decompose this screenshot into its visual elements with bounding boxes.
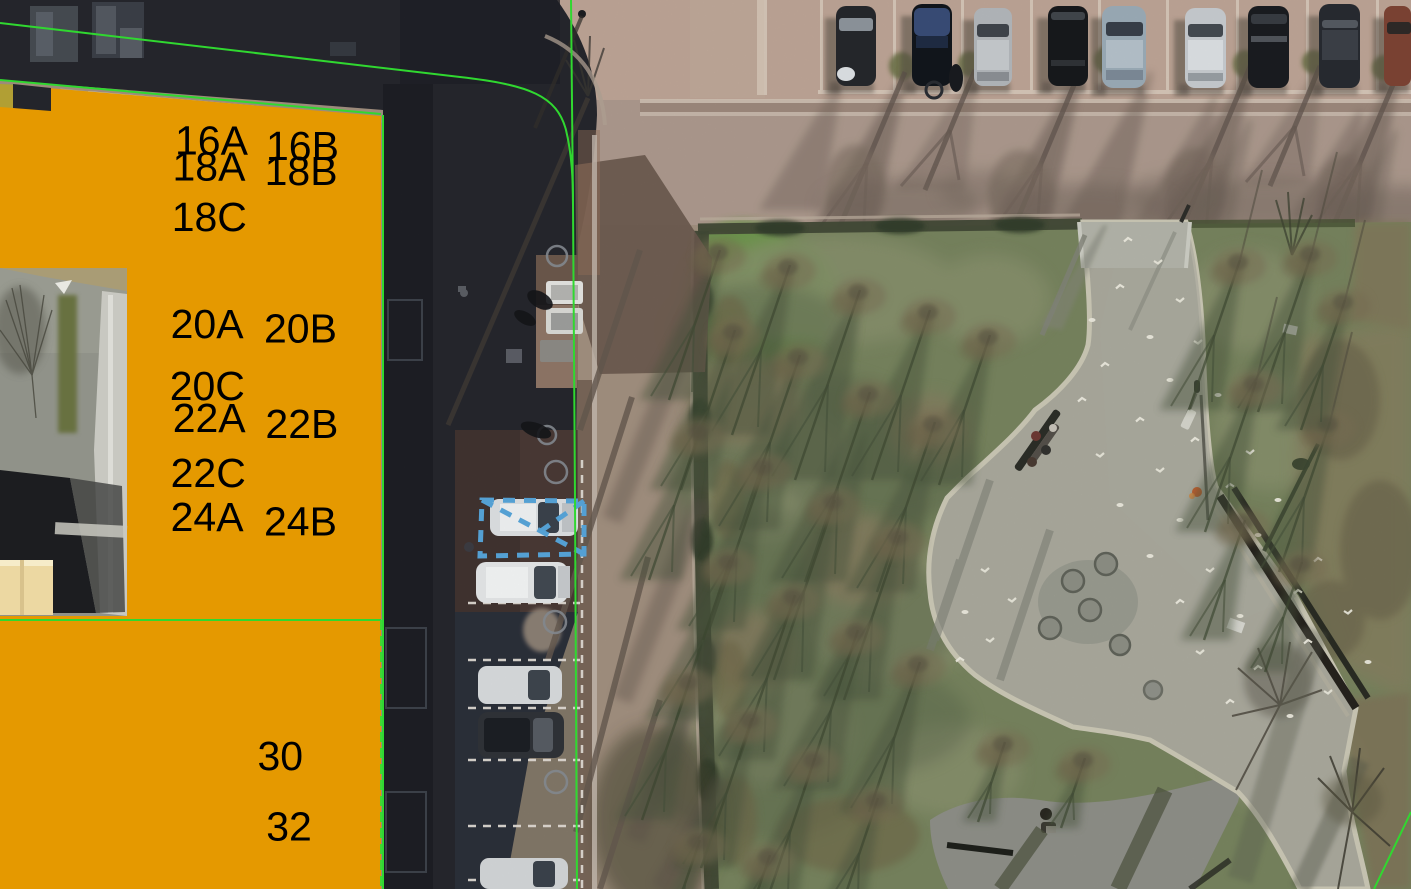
svg-text:18A: 18A [173, 144, 247, 190]
svg-text:22C: 22C [171, 450, 246, 496]
svg-text:18C: 18C [172, 194, 247, 240]
svg-text:18B: 18B [265, 148, 338, 194]
svg-text:24B: 24B [264, 499, 337, 545]
svg-text:20A: 20A [171, 301, 245, 347]
svg-text:32: 32 [266, 803, 312, 849]
svg-text:24A: 24A [171, 494, 245, 540]
svg-text:22A: 22A [173, 395, 247, 441]
svg-text:20B: 20B [264, 306, 337, 352]
svg-text:30: 30 [258, 733, 304, 779]
svg-text:22B: 22B [265, 401, 338, 447]
